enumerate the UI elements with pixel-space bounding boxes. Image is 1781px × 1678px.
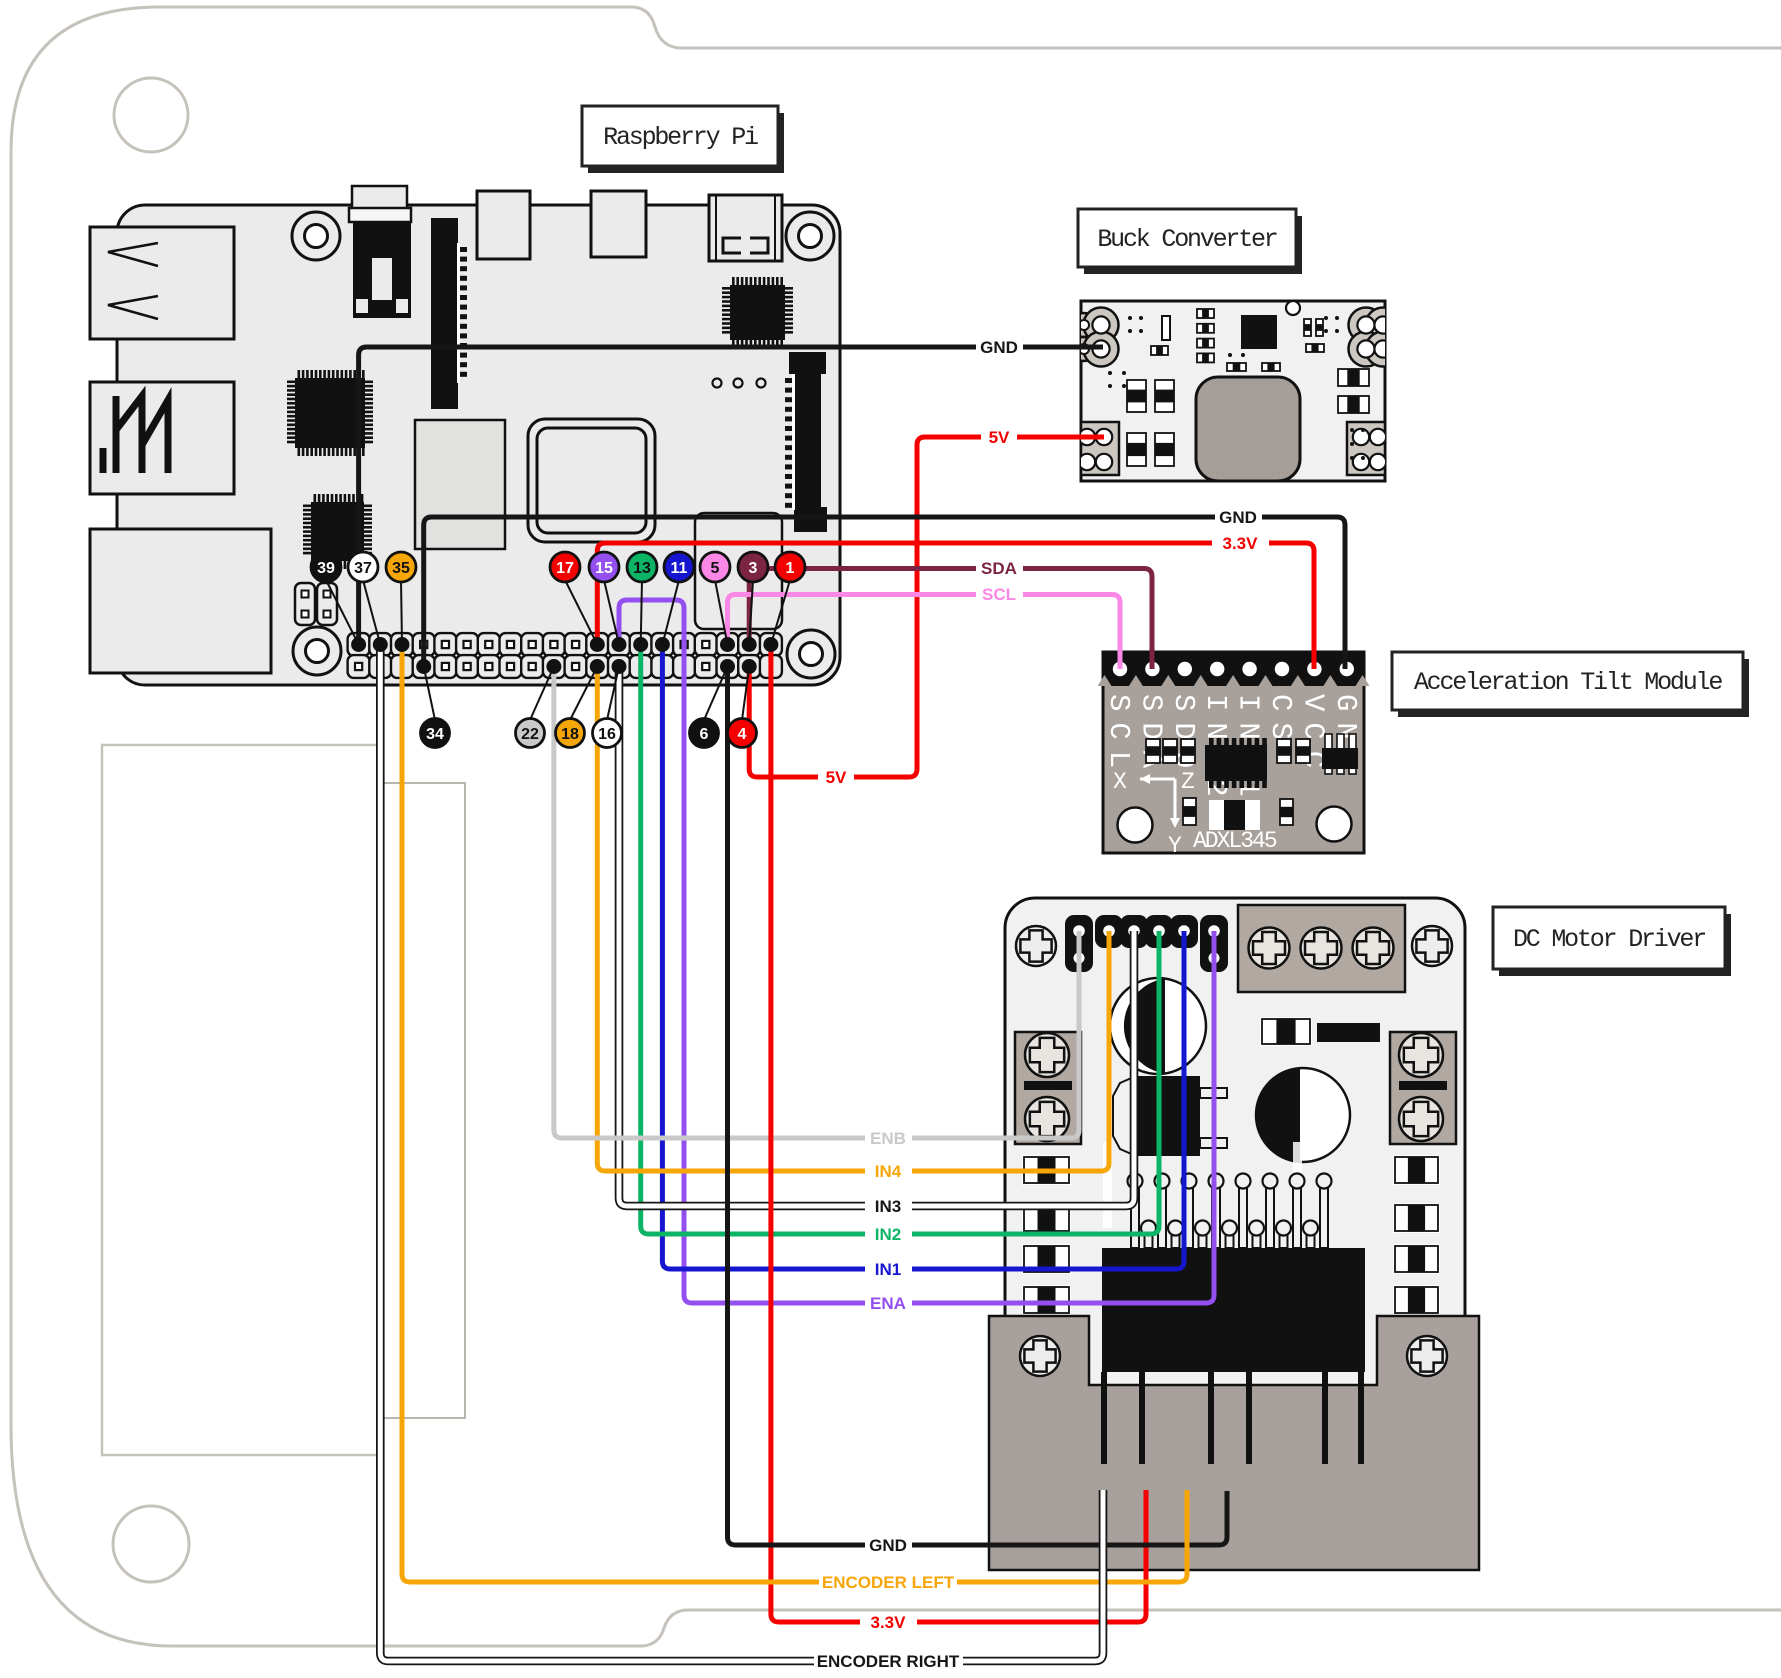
svg-text:4: 4 <box>738 726 747 743</box>
svg-text:3: 3 <box>749 560 758 577</box>
svg-text:DC Motor Driver: DC Motor Driver <box>1513 925 1705 954</box>
svg-text:Raspberry Pi: Raspberry Pi <box>603 123 758 152</box>
svg-text:ENA: ENA <box>870 1294 906 1313</box>
svg-text:GND: GND <box>980 338 1018 357</box>
svg-text:IN1: IN1 <box>875 1260 901 1279</box>
svg-text:15: 15 <box>595 560 613 577</box>
svg-text:Y: Y <box>1168 833 1182 859</box>
svg-text:22: 22 <box>521 726 539 743</box>
svg-text:5: 5 <box>711 560 720 577</box>
svg-text:3.3V: 3.3V <box>871 1613 907 1632</box>
svg-text:6: 6 <box>700 726 709 743</box>
svg-text:39: 39 <box>317 560 335 577</box>
svg-text:GND: GND <box>1219 508 1257 527</box>
svg-text:ENB: ENB <box>870 1129 906 1148</box>
svg-text:SCL: SCL <box>982 585 1016 604</box>
svg-text:37: 37 <box>354 560 372 577</box>
svg-text:34: 34 <box>426 726 444 743</box>
svg-text:ADXL345: ADXL345 <box>1193 828 1277 854</box>
svg-text:IN4: IN4 <box>875 1162 902 1181</box>
svg-text:18: 18 <box>561 726 579 743</box>
svg-text:Z: Z <box>1181 769 1195 795</box>
svg-text:SDO: SDO <box>1167 694 1200 779</box>
svg-text:IN3: IN3 <box>875 1197 901 1216</box>
svg-text:SDA: SDA <box>981 559 1017 578</box>
svg-text:Acceleration Tilt Module: Acceleration Tilt Module <box>1414 668 1722 697</box>
svg-text:Buck Converter: Buck Converter <box>1097 225 1276 254</box>
svg-text:X: X <box>1113 769 1127 795</box>
svg-text:SCL: SCL <box>1102 694 1135 779</box>
svg-text:11: 11 <box>671 560 688 577</box>
svg-text:17: 17 <box>556 560 574 577</box>
svg-text:ENCODER LEFT: ENCODER LEFT <box>822 1573 955 1592</box>
svg-text:16: 16 <box>598 726 616 743</box>
svg-text:5V: 5V <box>989 428 1010 447</box>
svg-text:3.3V: 3.3V <box>1223 534 1259 553</box>
svg-text:SDA: SDA <box>1134 694 1167 779</box>
svg-text:1: 1 <box>786 560 795 577</box>
svg-text:13: 13 <box>633 560 651 577</box>
svg-text:5V: 5V <box>826 768 847 787</box>
svg-text:35: 35 <box>392 560 410 577</box>
svg-text:GND: GND <box>869 1536 907 1555</box>
svg-text:IN2: IN2 <box>875 1225 901 1244</box>
svg-text:ENCODER RIGHT: ENCODER RIGHT <box>817 1652 960 1671</box>
